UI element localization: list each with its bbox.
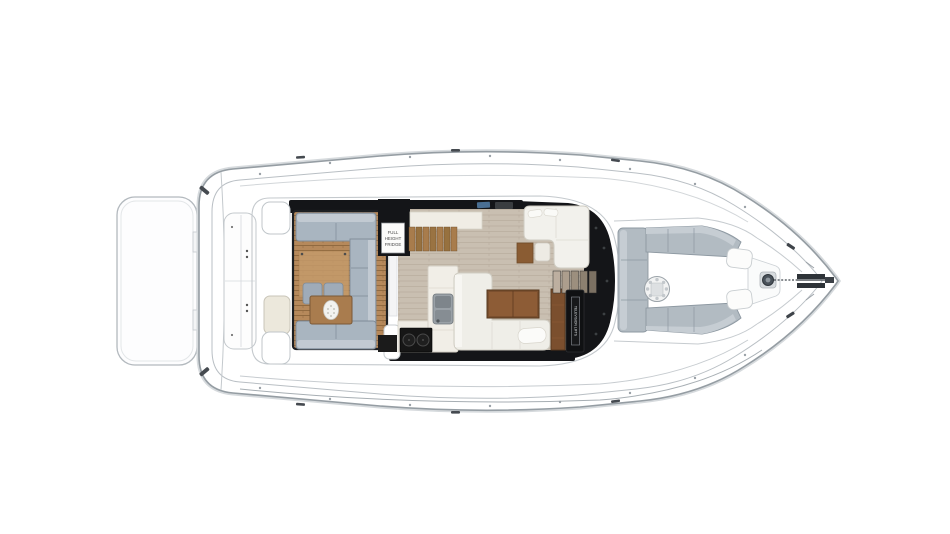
galley-cooktop xyxy=(400,328,432,352)
side-cabinet xyxy=(551,289,565,350)
swim-platform xyxy=(117,197,202,365)
dinette-table xyxy=(517,243,533,263)
cockpit-table xyxy=(310,296,352,324)
dinette-stool xyxy=(535,243,550,261)
windlass xyxy=(760,272,776,288)
floorplan-drawing: FULL HEIGHT FRIDGE xyxy=(0,0,950,534)
coffee-table xyxy=(487,290,539,318)
galley-stairs xyxy=(409,227,457,251)
tv-lift-label: TELEVISION LIFTS xyxy=(574,306,578,337)
bow-table xyxy=(645,277,670,302)
svg-text:TELEVISION LIFTS: TELEVISION LIFTS xyxy=(574,306,578,337)
galley-sink xyxy=(433,294,453,324)
svg-text:FULL: FULL xyxy=(388,230,399,235)
yacht-floorplan: FULL HEIGHT FRIDGE xyxy=(0,0,950,534)
transom-hatches xyxy=(224,213,256,349)
svg-text:HEIGHT: HEIGHT xyxy=(385,236,402,241)
svg-text:FRIDGE: FRIDGE xyxy=(385,242,402,247)
